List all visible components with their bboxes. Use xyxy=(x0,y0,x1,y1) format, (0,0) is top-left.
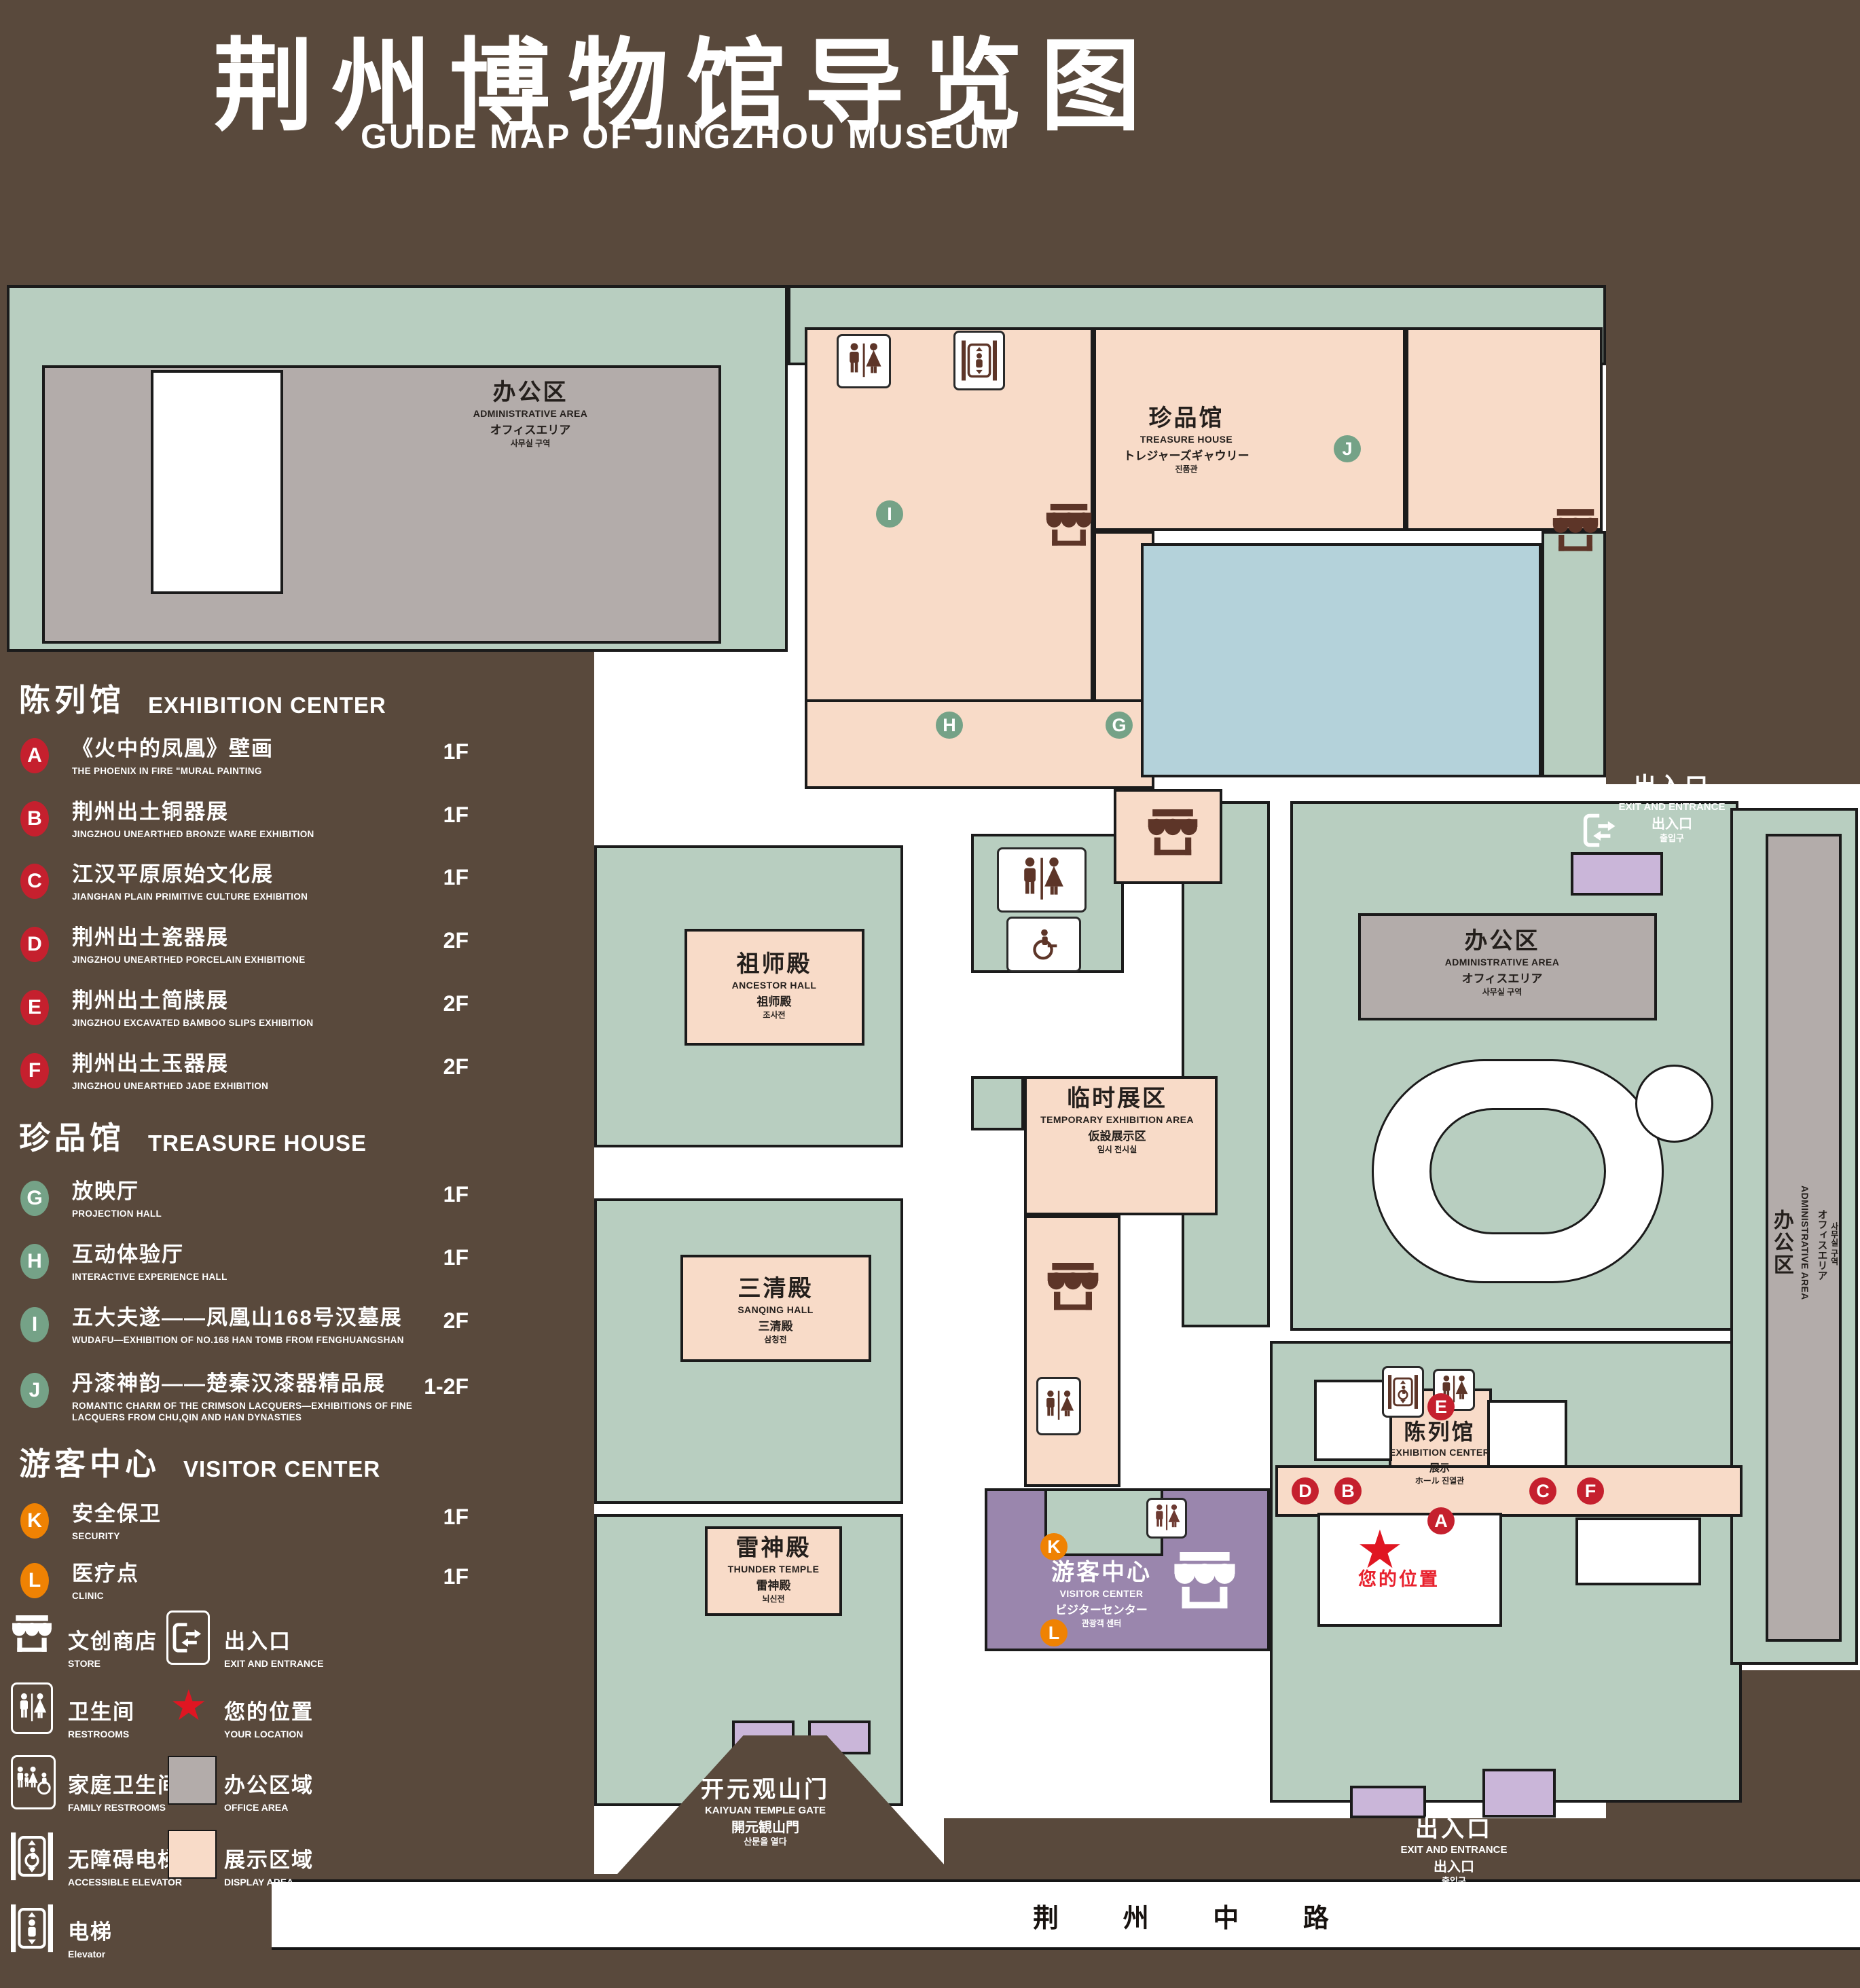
exhibition-courtyard-ne xyxy=(1487,1400,1567,1468)
label-visitor-center: 游客中心 VISITOR CENTER ビジターセンター 관광객 센터 xyxy=(1051,1560,1152,1629)
road-label: 荆 州 中 路 xyxy=(1033,1897,1357,1934)
legend-item-K: K 安全保卫SECURITY 1F xyxy=(19,1502,469,1542)
map-marker-J: J xyxy=(1334,435,1361,462)
legend-item-G: G 放映厅PROJECTION HALL 1F xyxy=(19,1179,469,1219)
exhibition-courtyard-nw xyxy=(1314,1380,1392,1461)
accessible-restroom-icon xyxy=(1006,917,1081,972)
label-kaiyuan-gate: 开元观山门 KAIYUAN TEMPLE GATE 開元観山門 산문을 열다 xyxy=(701,1778,830,1847)
your-location-star: ★ xyxy=(1356,1523,1404,1576)
elevator-icon xyxy=(953,331,1005,390)
exit-entrance-icon xyxy=(1581,812,1620,849)
exit-entrance-icon xyxy=(166,1610,210,1665)
map-marker-E: E xyxy=(1427,1393,1455,1420)
label-admin-right: 办公区 ADMINISTRATIVE AREA オフィスエリア 사무실 구역 xyxy=(1445,929,1560,997)
legend-symbol-restrooms: 卫生间RESTROOMS xyxy=(68,1695,135,1739)
store-icon xyxy=(1551,509,1600,553)
legend-item-A: A 《火中的凤凰》壁画THE PHOENIX IN FIRE "MURAL PA… xyxy=(19,737,469,777)
label-ancestor-hall: 祖师殿 ANCESTOR HALL 祖师殿 조사전 xyxy=(732,952,817,1020)
accessible-elevator-icon xyxy=(1382,1366,1424,1418)
label-exhibition-center: 陈列馆 EXHIBITION CENTER 展示 ホール 진열관 xyxy=(1389,1420,1490,1486)
store-icon xyxy=(1044,504,1093,547)
legend-item-I: I 五大夫遂——凤凰山168号汉墓展WUDAFU—EXHIBITION OF N… xyxy=(19,1306,469,1346)
legend-symbol-your-location: 您的位置YOUR LOCATION xyxy=(224,1695,314,1739)
label-temporary-exhibition: 临时展区 TEMPORARY EXHIBITION AREA 仮設展示区 임시 … xyxy=(1040,1086,1194,1155)
green-right-of-pond xyxy=(1542,531,1606,777)
exit-building-right xyxy=(1482,1769,1556,1818)
map-marker-L: L xyxy=(1040,1619,1068,1646)
map-marker-C: C xyxy=(1529,1477,1556,1505)
restrooms-icon xyxy=(11,1682,53,1734)
accessible-elevator-icon xyxy=(11,1830,53,1883)
admin-courtyard xyxy=(151,370,283,594)
treasure-house-south-bar xyxy=(805,699,1154,789)
page-subtitle: GUIDE MAP OF JINGZHOU MUSEUM xyxy=(361,117,1011,156)
legend-symbol-accessible-elevator: 无障碍电梯ACCESSIBLE ELEVATOR xyxy=(68,1843,182,1888)
legend-symbol-elevator: 电梯Elevator xyxy=(68,1915,113,1959)
legend-symbol-family-restrooms: 家庭卫生间FAMILY RESTROOMS xyxy=(68,1768,180,1813)
legend-symbol-display-area: 展示区域DISPLAY AREA xyxy=(224,1843,314,1888)
legend-item-E: E 荆州出土简牍展JINGZHOU EXCAVATED BAMBOO SLIPS… xyxy=(19,989,469,1029)
map-marker-K: K xyxy=(1040,1533,1068,1560)
pond xyxy=(1141,543,1542,777)
label-exit-bottom: 出入口 EXIT AND ENTRANCE 出入口 출입구 xyxy=(1401,1817,1508,1886)
label-admin-far-right: 办公区 ADMINISTRATIVE AREA オフィスエリア 사무실 구역 xyxy=(1768,1066,1839,1419)
exit-building-left xyxy=(1350,1786,1426,1818)
office-area-swatch xyxy=(168,1756,217,1805)
legend-item-D: D 荆州出土瓷器展JINGZHOU UNEARTHED PORCELAIN EX… xyxy=(19,925,469,965)
store-icon xyxy=(1172,1552,1237,1610)
display-area-swatch xyxy=(168,1830,217,1879)
restrooms-icon xyxy=(1036,1377,1081,1435)
legend-item-C: C 江汉平原原始文化展JIANGHAN PLAIN PRIMITIVE CULT… xyxy=(19,862,469,902)
museum-guide-map-poster: { "title": {"zh": "荆州博物馆导览图", "en": "GUI… xyxy=(0,0,1860,1988)
legend-item-B: B 荆州出土铜器展JINGZHOU UNEARTHED BRONZE WARE … xyxy=(19,800,469,840)
green-small-block xyxy=(971,1076,1024,1130)
your-location-label: 您的位置 xyxy=(1358,1570,1440,1590)
legend-symbol-exit: 出入口EXIT AND ENTRANCE xyxy=(224,1624,324,1669)
your-location-star: ★ xyxy=(170,1685,208,1727)
store-icon xyxy=(1046,1263,1100,1312)
family-restrooms-icon xyxy=(11,1755,56,1809)
garden-path-circle xyxy=(1635,1065,1713,1143)
legend-item-L: L 医疗点CLINIC 1F xyxy=(19,1562,469,1602)
entrance-building-top-right xyxy=(1571,852,1663,896)
map-marker-A: A xyxy=(1427,1507,1455,1534)
legend-item-J: J 丹漆神韵——楚秦汉漆器精品展ROMANTIC CHARM OF THE CR… xyxy=(19,1372,469,1424)
label-exit-top-right: 出入口 EXIT AND ENTRANCE 出入口 출입구 xyxy=(1619,774,1726,843)
map-marker-I: I xyxy=(876,500,903,528)
label-treasure-house: 珍品馆 TREASURE HOUSE トレジャーズギャウリー 진품관 xyxy=(1123,406,1249,475)
map-marker-G: G xyxy=(1106,712,1133,739)
store-icon xyxy=(1146,809,1199,857)
building-temporary-wing xyxy=(1024,1215,1120,1487)
label-admin-top-left: 办公区 ADMINISTRATIVE AREA オフィスエリア 사무실 구역 xyxy=(473,380,588,449)
elevator-icon xyxy=(11,1901,53,1955)
map-marker-F: F xyxy=(1577,1477,1604,1505)
legend-symbol-store: 文创商店STORE xyxy=(68,1624,158,1669)
treasure-house-east-wing xyxy=(1406,327,1603,531)
map-marker-H: H xyxy=(936,712,963,739)
restrooms-icon xyxy=(837,334,891,388)
exhibition-courtyard-se xyxy=(1575,1517,1701,1585)
map-marker-B: B xyxy=(1334,1477,1362,1505)
garden-island xyxy=(1429,1108,1606,1234)
legend-symbol-office-area: 办公区域OFFICE AREA xyxy=(224,1768,314,1813)
store-icon xyxy=(11,1615,53,1654)
map-marker-D: D xyxy=(1292,1477,1319,1505)
legend-section-treasure-house: 珍品馆 TREASURE HOUSE xyxy=(19,1113,367,1158)
restrooms-icon xyxy=(1146,1498,1187,1539)
building-admin-top-left xyxy=(42,365,721,644)
legend-section-visitor-center: 游客中心 VISITOR CENTER xyxy=(19,1439,380,1484)
legend-section-exhibition-center: 陈列馆 EXHIBITION CENTER xyxy=(19,676,386,720)
restrooms-icon xyxy=(997,847,1087,913)
label-sanqing-hall: 三清殿 SANQING HALL 三清殿 삼청전 xyxy=(737,1276,813,1345)
legend-item-H: H 互动体验厅INTERACTIVE EXPERIENCE HALL 1F xyxy=(19,1242,469,1283)
label-thunder-temple: 雷神殿 THUNDER TEMPLE 雷神殿 뇌신전 xyxy=(728,1536,820,1604)
legend-item-F: F 荆州出土玉器展JINGZHOU UNEARTHED JADE EXHIBIT… xyxy=(19,1052,469,1092)
